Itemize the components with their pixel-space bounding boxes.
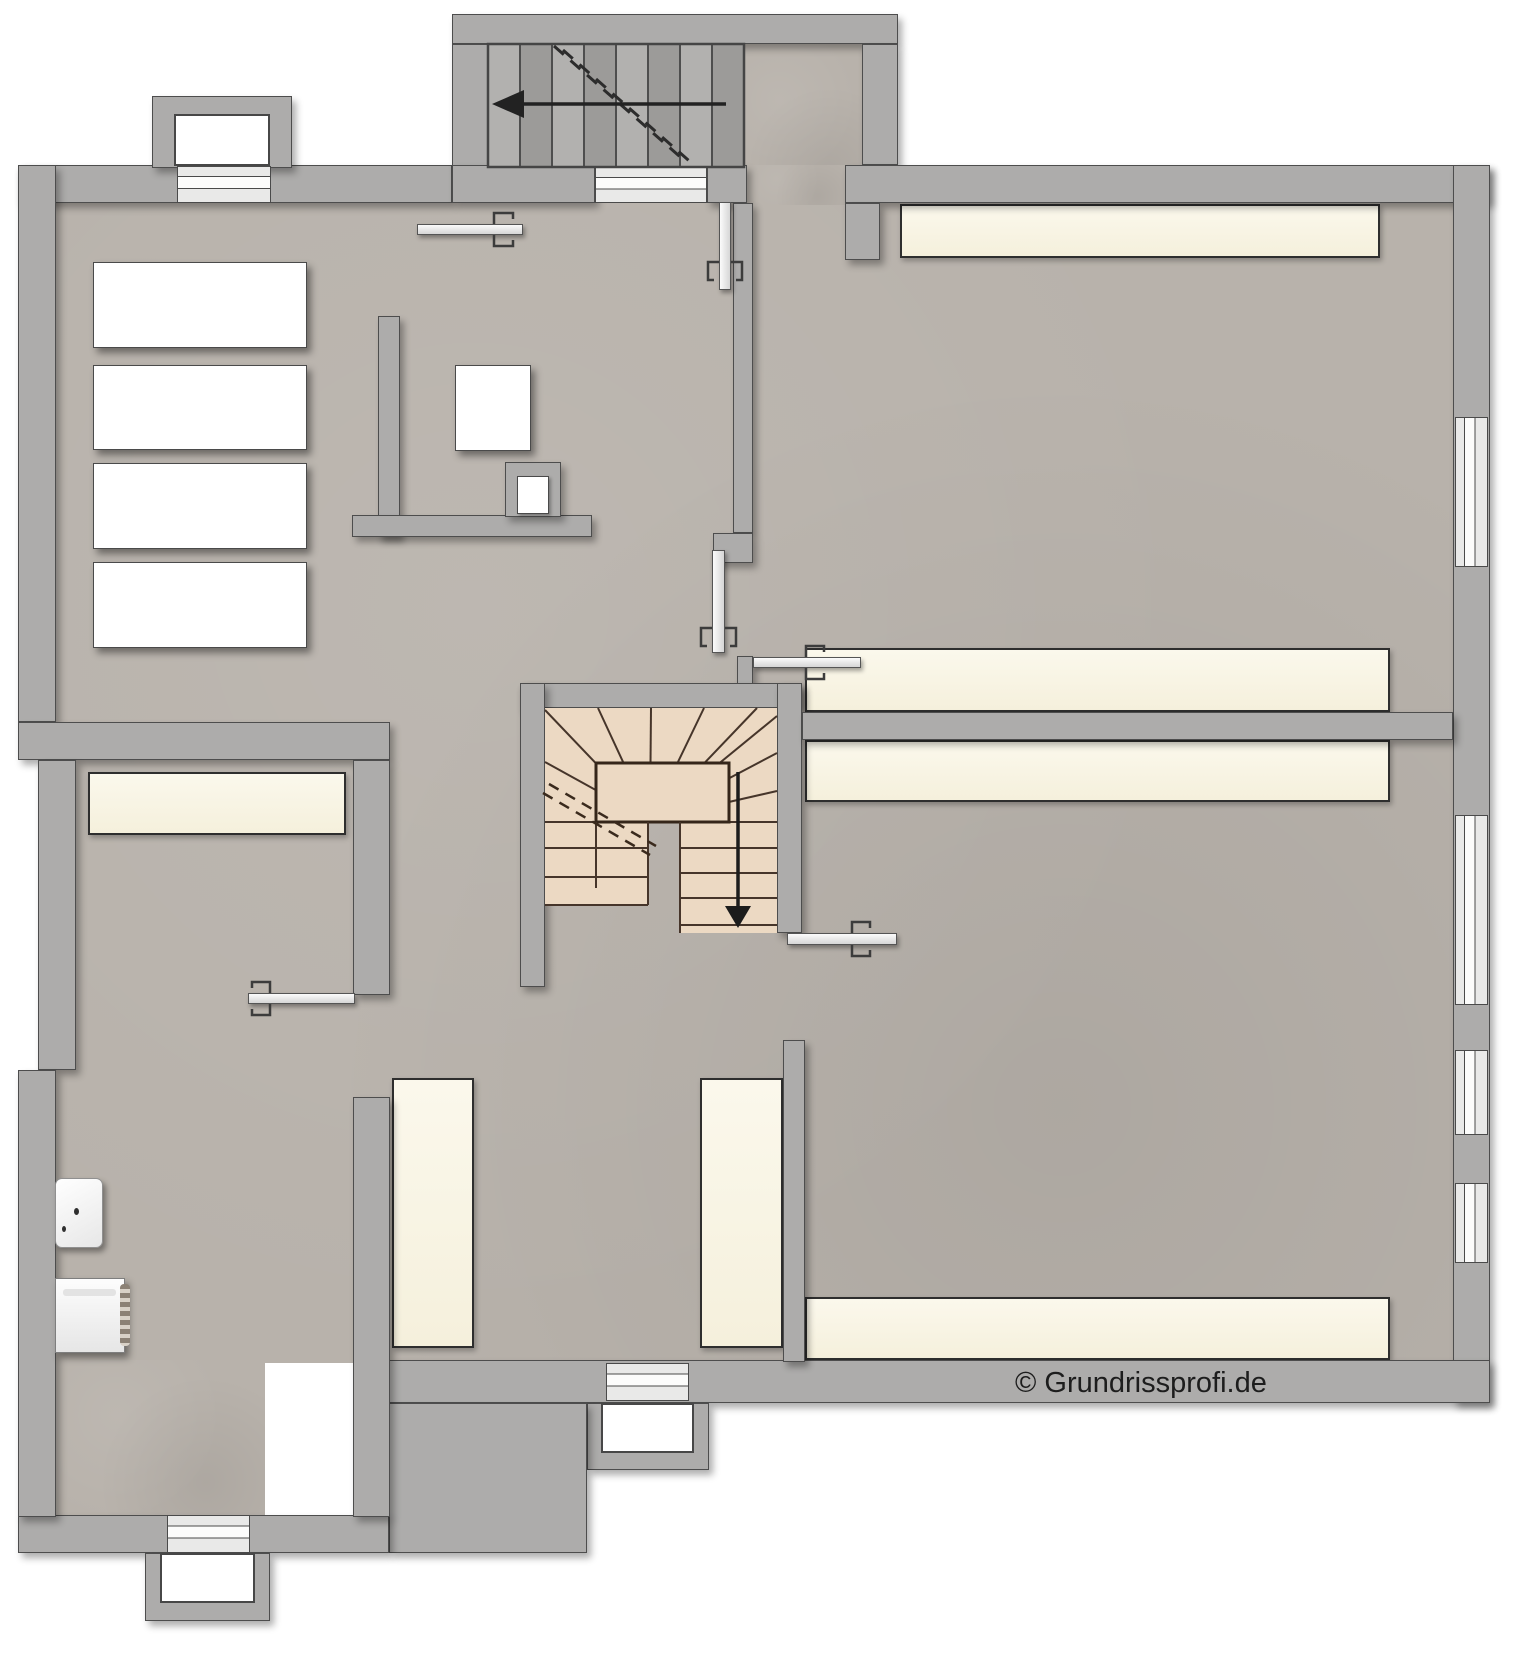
window-right-4 (1455, 1183, 1488, 1263)
sink-tap-dot (62, 1226, 66, 1232)
partition-storage-vertical (378, 316, 400, 537)
window-right-1 (1455, 417, 1488, 567)
chimney-inner-box (517, 476, 549, 514)
lightwell-bottom-left-inner (160, 1553, 255, 1603)
wall-leftroom-right-upper (353, 760, 390, 995)
platform-top-right-room (900, 204, 1380, 258)
platform-middle-room-left (392, 1078, 474, 1348)
shelf-4 (93, 562, 307, 648)
wall-stub-top-right (845, 203, 880, 260)
floor-top-opening (747, 165, 845, 205)
platform-lower-right-room-top (805, 740, 1390, 802)
door-left-room (248, 993, 355, 1004)
wall-top-right (845, 165, 1490, 203)
sink-drain-dot (74, 1208, 79, 1215)
platform-left-room-top (88, 772, 346, 835)
door-corridor-middle (712, 550, 725, 653)
wall-left-lower (18, 1070, 56, 1517)
copyright-watermark: © Grundrissprofi.de (1015, 1367, 1267, 1400)
wall-middle-vertical (733, 203, 753, 533)
stair-enclosure-right (777, 683, 802, 933)
shelf-2 (93, 365, 307, 450)
wall-exterior-stair-top (452, 14, 898, 44)
heater-coil (120, 1284, 130, 1346)
window-right-3 (1455, 1050, 1488, 1135)
stair-enclosure-left (520, 683, 545, 987)
table-box (455, 365, 531, 451)
door-top-entry (719, 202, 731, 290)
wall-block-bottom (389, 1403, 587, 1553)
platform-lower-right-room-bottom (805, 1297, 1390, 1360)
window-bottom-middle (606, 1363, 689, 1401)
sink (55, 1178, 103, 1248)
door-lower-right-room (787, 933, 897, 945)
floor-bottom-left-room (53, 1360, 265, 1517)
window-top-left (177, 166, 271, 203)
wall-exterior-stair-left (452, 44, 488, 167)
shelf-1 (93, 262, 307, 348)
wall-under-stair-a (452, 165, 595, 203)
platform-upper-right-room-bottom (805, 648, 1390, 712)
heater-groove (63, 1289, 116, 1296)
shelf-3 (93, 463, 307, 549)
lightwell-bottom-middle-inner (601, 1403, 694, 1453)
door-storage-room (417, 224, 523, 235)
window-under-stair (595, 167, 707, 203)
wall-divider-right-rooms (802, 712, 1453, 740)
wall-under-stair-b (707, 165, 747, 203)
partition-storage-horizontal (352, 515, 592, 537)
wall-exterior-stair-right (862, 44, 898, 165)
wall-bottom-right (389, 1360, 1490, 1403)
basement-floor-plan: © Grundrissprofi.de (0, 0, 1520, 1656)
wall-middle-room-right (783, 1040, 805, 1362)
wall-left-middle (38, 760, 76, 1070)
window-bottom-left (167, 1515, 250, 1553)
wall-leftroom-right-lower (353, 1097, 390, 1517)
door-upper-right-room (753, 657, 861, 668)
stair-enclosure-top (520, 683, 802, 708)
platform-middle-room-right (700, 1078, 783, 1348)
wall-stub-door-jamb (737, 656, 753, 685)
window-right-2 (1455, 815, 1488, 1005)
lightwell-top-left-inner (174, 114, 270, 166)
wall-left-upper (18, 165, 56, 722)
wall-divider-left-rooms (18, 722, 390, 760)
